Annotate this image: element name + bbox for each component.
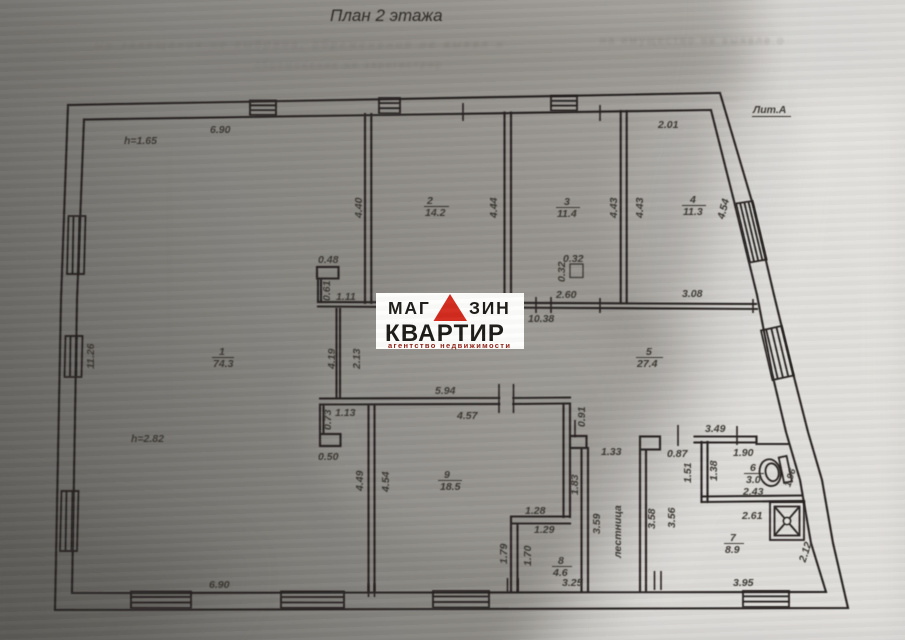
svg-text:2.43: 2.43 — [742, 486, 764, 498]
svg-text:МАГ: МАГ — [388, 298, 431, 318]
svg-text:0.87: 0.87 — [667, 448, 689, 460]
svg-text:2.60: 2.60 — [555, 289, 577, 301]
svg-text:на имущество не выявле о: на имущество не выявле о — [600, 35, 785, 47]
svg-text:ЗИН: ЗИН — [469, 298, 511, 318]
svg-text:0.73: 0.73 — [322, 409, 334, 430]
svg-text:3.0: 3.0 — [746, 474, 761, 486]
svg-text:2: 2 — [426, 195, 433, 207]
svg-text:2.13: 2.13 — [351, 348, 363, 370]
svg-text:3: 3 — [564, 196, 570, 208]
svg-text:1.33: 1.33 — [601, 446, 622, 458]
svg-text:1.29: 1.29 — [534, 524, 555, 536]
svg-text:3.56: 3.56 — [666, 507, 678, 528]
svg-text:3.95: 3.95 — [733, 577, 754, 589]
svg-text:11.4: 11.4 — [557, 208, 577, 220]
svg-text:4.43: 4.43 — [634, 197, 646, 219]
svg-text:1: 1 — [219, 346, 225, 358]
svg-text:1.70: 1.70 — [522, 545, 534, 566]
svg-text:4.19: 4.19 — [326, 348, 338, 370]
svg-text:ые завещания не выбрана, обрем: ые завещания не выбрана, обременения не … — [95, 39, 505, 51]
svg-text:4: 4 — [689, 194, 696, 206]
svg-text:h=1.65: h=1.65 — [124, 135, 157, 147]
svg-text:6.90: 6.90 — [210, 124, 231, 136]
svg-text:Лит.А: Лит.А — [752, 104, 786, 116]
svg-text:2.61: 2.61 — [741, 510, 763, 522]
svg-text:1.28: 1.28 — [525, 505, 546, 517]
svg-text:1.90: 1.90 — [733, 447, 754, 459]
svg-text:0.91: 0.91 — [576, 406, 588, 427]
svg-text:агентство недвижимости: агентство недвижимости — [388, 341, 511, 350]
svg-text:6.90: 6.90 — [209, 579, 230, 591]
svg-text:74.3: 74.3 — [213, 358, 234, 370]
svg-text:4.54: 4.54 — [380, 471, 392, 493]
svg-text:0.61: 0.61 — [321, 280, 333, 301]
svg-text:1.51: 1.51 — [682, 462, 694, 483]
svg-text:обременение не зарегистрир: обременение не зарегистрир — [255, 59, 443, 71]
svg-text:1.79: 1.79 — [498, 543, 510, 564]
svg-text:10.38: 10.38 — [528, 313, 554, 325]
svg-text:5: 5 — [646, 346, 652, 358]
svg-text:1.83: 1.83 — [569, 474, 581, 495]
svg-text:лестница: лестница — [612, 505, 624, 559]
svg-text:4.49: 4.49 — [354, 470, 366, 492]
svg-text:4.40: 4.40 — [353, 197, 365, 219]
svg-text:8: 8 — [558, 555, 564, 567]
svg-text:3.49: 3.49 — [705, 423, 726, 435]
svg-text:8.9: 8.9 — [725, 544, 740, 556]
svg-text:11.3: 11.3 — [683, 206, 703, 218]
svg-text:6: 6 — [750, 462, 756, 474]
svg-text:0.32: 0.32 — [556, 261, 568, 282]
svg-text:1.11: 1.11 — [336, 291, 356, 303]
svg-text:5.94: 5.94 — [435, 385, 456, 397]
svg-text:9: 9 — [444, 469, 450, 481]
svg-text:План 2 этажа: План 2 этажа — [330, 6, 443, 25]
svg-text:3.25: 3.25 — [562, 577, 583, 589]
svg-text:3.59: 3.59 — [591, 513, 603, 534]
svg-text:h=2.82: h=2.82 — [131, 433, 164, 445]
svg-text:0.48: 0.48 — [318, 254, 339, 266]
svg-text:1.13: 1.13 — [335, 407, 356, 419]
svg-text:1.38: 1.38 — [708, 460, 720, 481]
svg-text:11.26: 11.26 — [85, 343, 97, 369]
svg-text:4.57: 4.57 — [456, 410, 479, 422]
svg-text:3.58: 3.58 — [646, 508, 658, 529]
svg-text:0.50: 0.50 — [318, 451, 339, 463]
svg-text:2.01: 2.01 — [657, 119, 679, 131]
svg-text:4.44: 4.44 — [488, 197, 500, 219]
svg-text:18.5: 18.5 — [440, 481, 461, 493]
svg-text:14.2: 14.2 — [425, 207, 446, 219]
svg-text:3.08: 3.08 — [682, 288, 703, 300]
svg-text:27.4: 27.4 — [636, 358, 658, 370]
svg-text:4.43: 4.43 — [608, 197, 620, 219]
